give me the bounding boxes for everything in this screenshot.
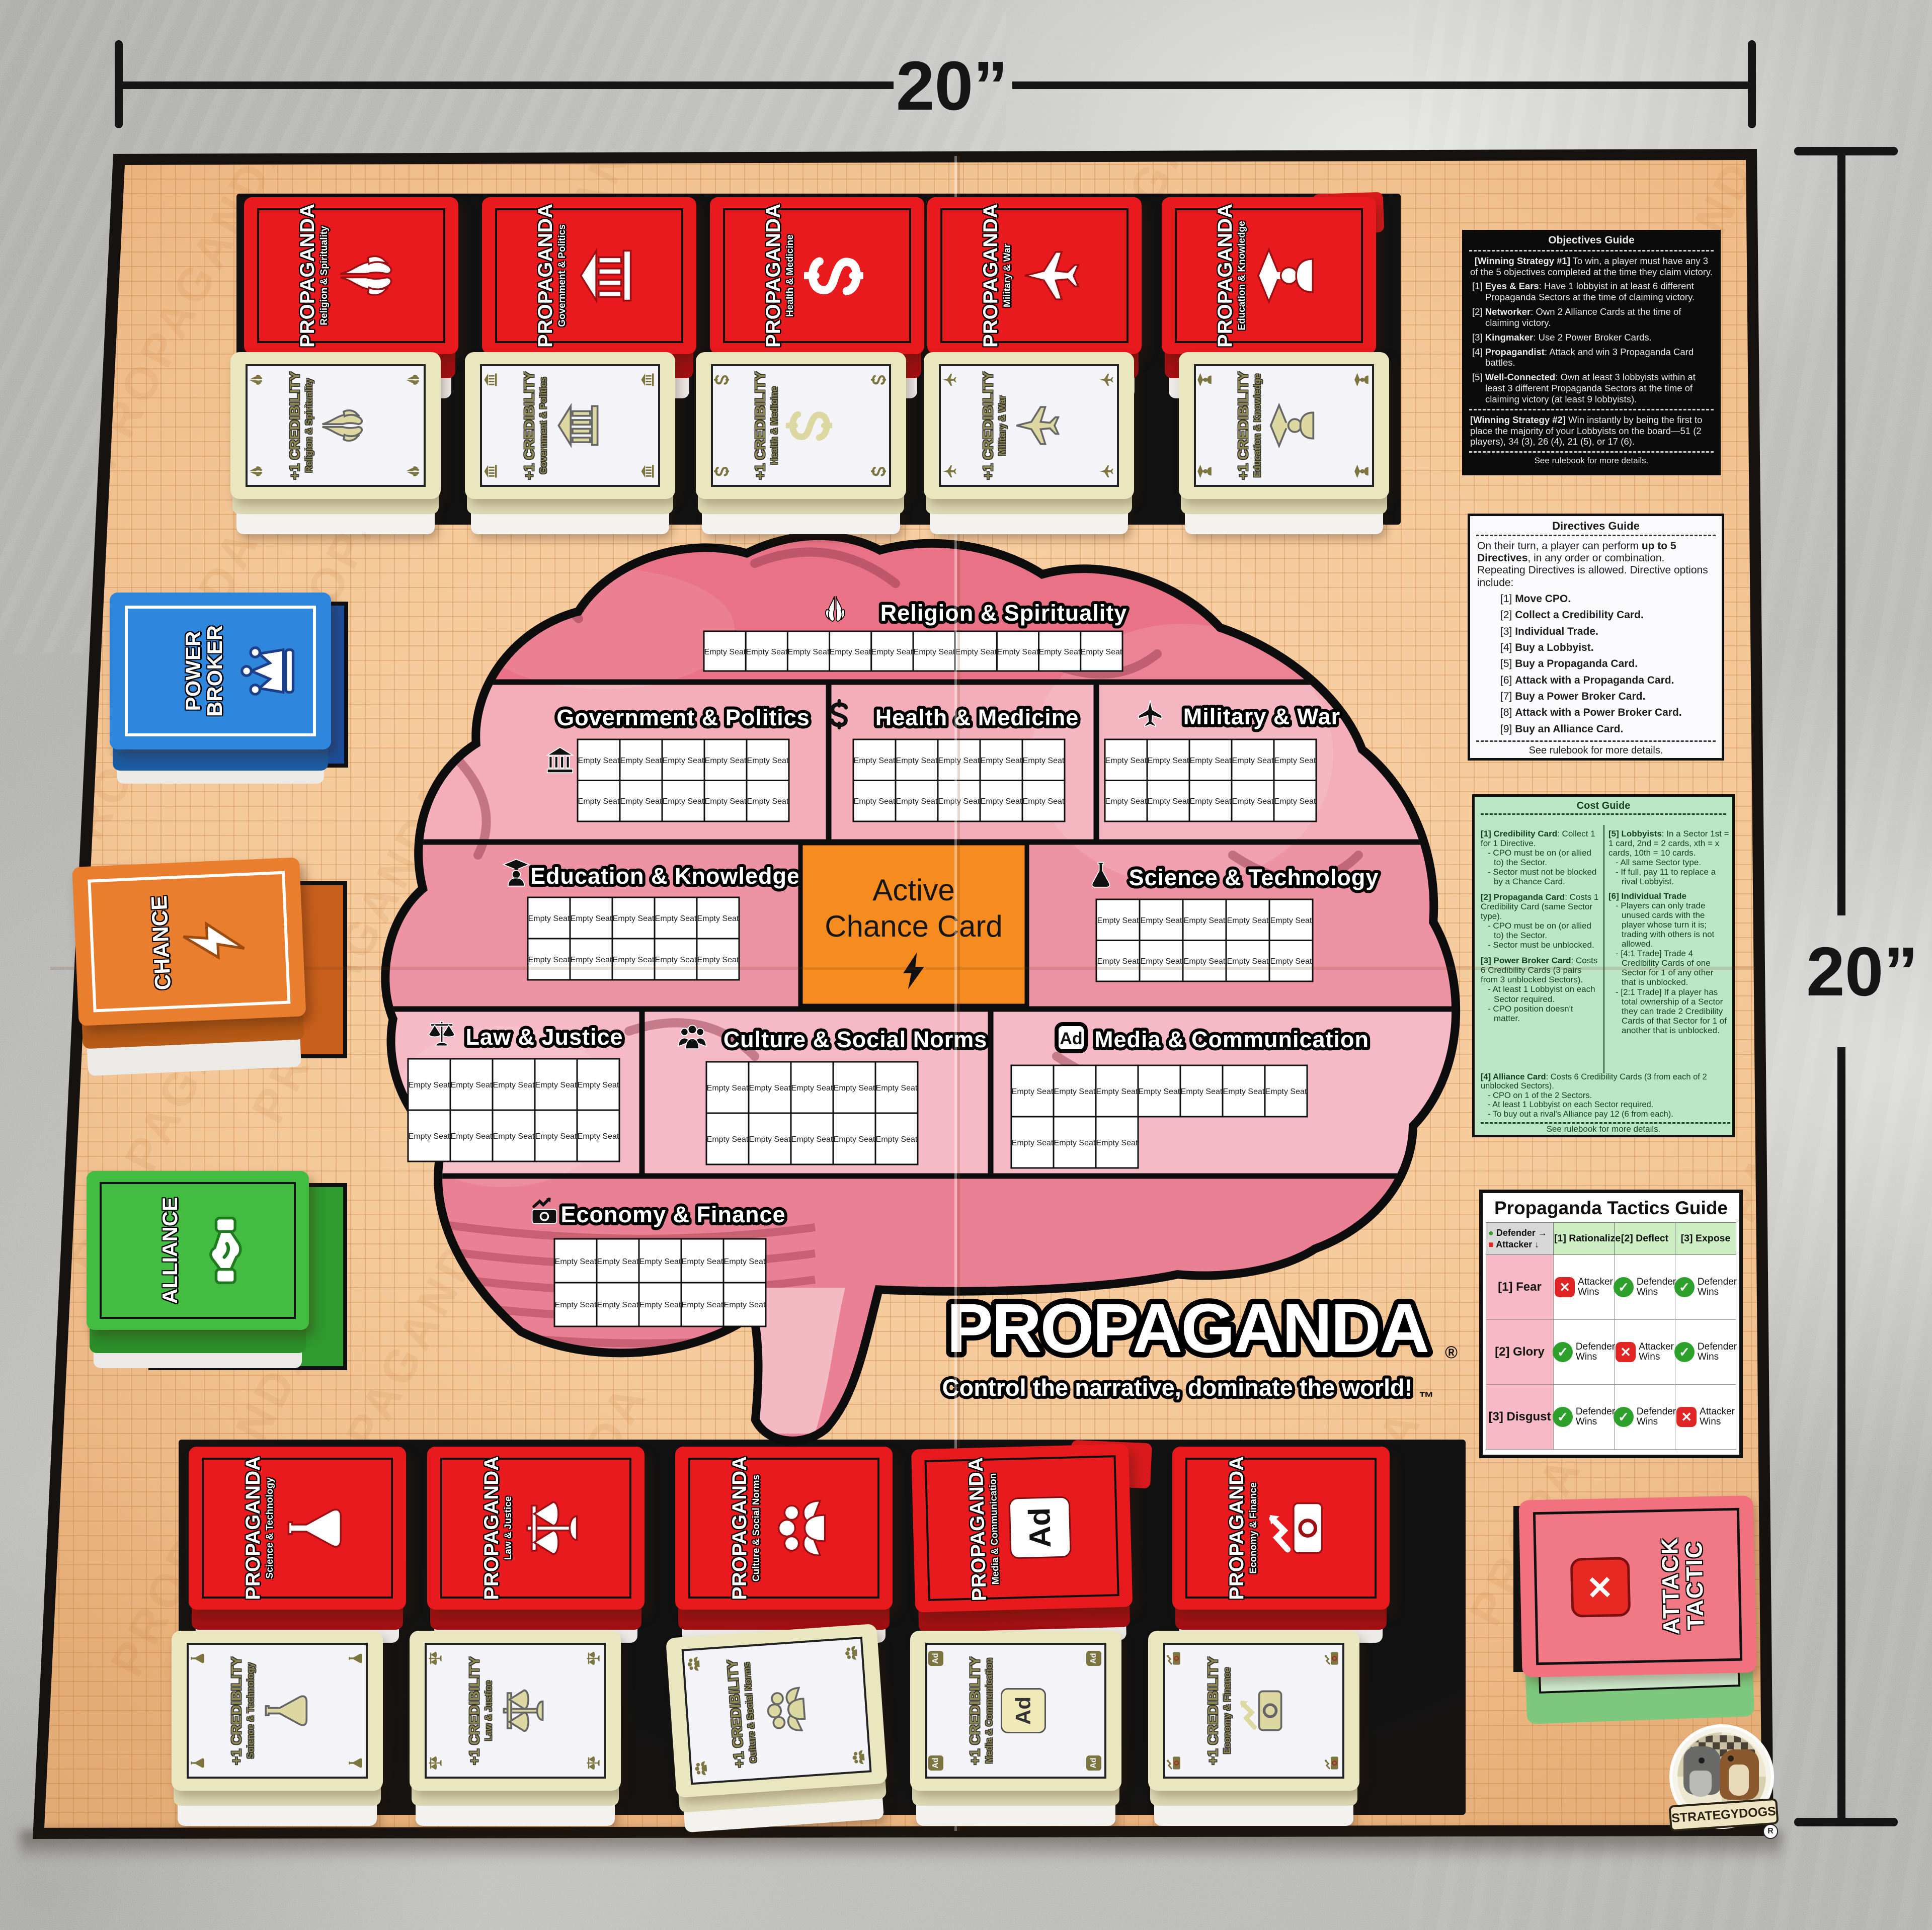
svg-text:Empty Seat: Empty Seat <box>1274 757 1316 765</box>
svg-text:Empty Seat: Empty Seat <box>1148 757 1189 765</box>
svg-text:Empty Seat: Empty Seat <box>571 914 612 923</box>
svg-text:Empty Seat: Empty Seat <box>1097 957 1139 966</box>
svg-text:Empty Seat: Empty Seat <box>451 1081 493 1089</box>
svg-text:Empty Seat: Empty Seat <box>578 757 620 765</box>
svg-text:Empty Seat: Empty Seat <box>705 797 747 806</box>
svg-text:Empty Seat: Empty Seat <box>1190 797 1232 806</box>
svg-text:Empty Seat: Empty Seat <box>747 757 789 765</box>
svg-text:Empty Seat: Empty Seat <box>1012 1087 1054 1096</box>
svg-text:Empty Seat: Empty Seat <box>896 757 938 765</box>
svg-text:Empty Seat: Empty Seat <box>571 956 612 964</box>
svg-text:Empty Seat: Empty Seat <box>613 956 655 964</box>
svg-text:Empty Seat: Empty Seat <box>697 914 739 923</box>
svg-text:Empty Seat: Empty Seat <box>1039 648 1081 656</box>
svg-text:Empty Seat: Empty Seat <box>854 797 896 806</box>
svg-text:Empty Seat: Empty Seat <box>451 1132 493 1141</box>
svg-text:Empty Seat: Empty Seat <box>1184 916 1226 925</box>
svg-text:Empty Seat: Empty Seat <box>834 1135 875 1144</box>
svg-text:Chance Card: Chance Card <box>825 909 1003 943</box>
svg-text:Empty Seat: Empty Seat <box>1232 757 1274 765</box>
svg-text:Empty Seat: Empty Seat <box>697 956 739 964</box>
svg-text:Empty Seat: Empty Seat <box>834 1084 875 1093</box>
svg-text:Empty Seat: Empty Seat <box>1148 797 1189 806</box>
svg-text:Empty Seat: Empty Seat <box>1227 916 1269 925</box>
svg-text:Control the narrative, dominat: Control the narrative, dominate the worl… <box>942 1374 1413 1401</box>
svg-text:Empty Seat: Empty Seat <box>876 1084 918 1093</box>
svg-text:Empty Seat: Empty Seat <box>749 1084 791 1093</box>
svg-text:Active: Active <box>872 873 954 907</box>
svg-text:Empty Seat: Empty Seat <box>981 797 1022 806</box>
svg-text:Empty Seat: Empty Seat <box>639 1301 681 1309</box>
svg-text:Empty Seat: Empty Seat <box>997 648 1039 656</box>
svg-text:Empty Seat: Empty Seat <box>705 757 747 765</box>
svg-text:Empty Seat: Empty Seat <box>724 1257 766 1266</box>
svg-text:Empty Seat: Empty Seat <box>1223 1087 1265 1096</box>
svg-text:Empty Seat: Empty Seat <box>682 1257 723 1266</box>
svg-text:Empty Seat: Empty Seat <box>1105 797 1147 806</box>
svg-text:Science & Technology: Science & Technology <box>1129 865 1379 890</box>
svg-text:Empty Seat: Empty Seat <box>528 914 570 923</box>
svg-text:Empty Seat: Empty Seat <box>620 797 662 806</box>
svg-text:Empty Seat: Empty Seat <box>1097 916 1139 925</box>
svg-text:Empty Seat: Empty Seat <box>747 797 789 806</box>
svg-text:Empty Seat: Empty Seat <box>1190 757 1232 765</box>
svg-text:Empty Seat: Empty Seat <box>1081 648 1122 656</box>
svg-text:Empty Seat: Empty Seat <box>655 956 697 964</box>
svg-text:Empty Seat: Empty Seat <box>981 757 1022 765</box>
svg-text:Empty Seat: Empty Seat <box>493 1081 535 1089</box>
svg-text:Empty Seat: Empty Seat <box>639 1257 681 1266</box>
svg-text:Empty Seat: Empty Seat <box>578 1132 619 1141</box>
svg-text:Empty Seat: Empty Seat <box>1096 1139 1138 1147</box>
svg-text:Empty Seat: Empty Seat <box>409 1081 450 1089</box>
svg-text:Empty Seat: Empty Seat <box>528 956 570 964</box>
svg-text:Empty Seat: Empty Seat <box>791 1084 833 1093</box>
svg-text:Empty Seat: Empty Seat <box>535 1081 577 1089</box>
svg-text:Empty Seat: Empty Seat <box>555 1257 597 1266</box>
svg-text:Health & Medicine: Health & Medicine <box>875 705 1079 730</box>
svg-text:Empty Seat: Empty Seat <box>914 648 955 656</box>
svg-text:Empty Seat: Empty Seat <box>1270 957 1312 966</box>
svg-text:Empty Seat: Empty Seat <box>597 1301 639 1309</box>
svg-text:Empty Seat: Empty Seat <box>707 1084 749 1093</box>
svg-text:Empty Seat: Empty Seat <box>620 757 662 765</box>
svg-text:Empty Seat: Empty Seat <box>663 797 704 806</box>
svg-text:Empty Seat: Empty Seat <box>749 1135 791 1144</box>
svg-text:Empty Seat: Empty Seat <box>1184 957 1226 966</box>
svg-text:Economy & Finance: Economy & Finance <box>560 1202 785 1227</box>
svg-text:Empty Seat: Empty Seat <box>597 1257 639 1266</box>
svg-text:Empty Seat: Empty Seat <box>1054 1139 1096 1147</box>
svg-text:Empty Seat: Empty Seat <box>613 914 655 923</box>
svg-text:Law & Justice: Law & Justice <box>465 1024 623 1050</box>
svg-text:Ad: Ad <box>1060 1029 1082 1048</box>
svg-text:™: ™ <box>1419 1389 1434 1406</box>
svg-text:Empty Seat: Empty Seat <box>655 914 697 923</box>
svg-text:Empty Seat: Empty Seat <box>1270 916 1312 925</box>
svg-text:Empty Seat: Empty Seat <box>788 648 830 656</box>
svg-text:Empty Seat: Empty Seat <box>724 1301 766 1309</box>
svg-text:Empty Seat: Empty Seat <box>791 1135 833 1144</box>
svg-text:Empty Seat: Empty Seat <box>1023 797 1065 806</box>
svg-text:Empty Seat: Empty Seat <box>1141 957 1182 966</box>
svg-text:Empty Seat: Empty Seat <box>871 648 913 656</box>
svg-text:Empty Seat: Empty Seat <box>409 1132 450 1141</box>
svg-text:Empty Seat: Empty Seat <box>704 648 746 656</box>
svg-text:Media & Communication: Media & Communication <box>1094 1027 1369 1052</box>
svg-text:Empty Seat: Empty Seat <box>1012 1139 1054 1147</box>
svg-text:Empty Seat: Empty Seat <box>1139 1087 1180 1096</box>
svg-text:Education & Knowledge: Education & Knowledge <box>530 863 800 889</box>
svg-text:Empty Seat: Empty Seat <box>1096 1087 1138 1096</box>
svg-text:Empty Seat: Empty Seat <box>1181 1087 1223 1096</box>
svg-text:Empty Seat: Empty Seat <box>493 1132 535 1141</box>
svg-text:PROPAGANDA: PROPAGANDA <box>947 1290 1428 1367</box>
svg-text:Empty Seat: Empty Seat <box>1265 1087 1307 1096</box>
svg-text:Empty Seat: Empty Seat <box>1274 797 1316 806</box>
svg-text:Empty Seat: Empty Seat <box>578 797 620 806</box>
svg-text:®: ® <box>1445 1343 1458 1362</box>
svg-text:Empty Seat: Empty Seat <box>854 757 896 765</box>
svg-text:Empty Seat: Empty Seat <box>682 1301 723 1309</box>
svg-text:Empty Seat: Empty Seat <box>555 1301 597 1309</box>
svg-text:Culture & Social Norms: Culture & Social Norms <box>723 1027 988 1052</box>
svg-text:Empty Seat: Empty Seat <box>578 1081 619 1089</box>
svg-text:Military & War: Military & War <box>1183 704 1340 729</box>
svg-text:Empty Seat: Empty Seat <box>896 797 938 806</box>
svg-text:Empty Seat: Empty Seat <box>1054 1087 1096 1096</box>
svg-text:Empty Seat: Empty Seat <box>955 648 997 656</box>
svg-text:Empty Seat: Empty Seat <box>1141 916 1182 925</box>
svg-text:Empty Seat: Empty Seat <box>876 1135 918 1144</box>
svg-text:Empty Seat: Empty Seat <box>1232 797 1274 806</box>
svg-text:Empty Seat: Empty Seat <box>1105 757 1147 765</box>
svg-text:Government & Politics: Government & Politics <box>556 705 810 730</box>
svg-text:Empty Seat: Empty Seat <box>535 1132 577 1141</box>
svg-text:Religion & Spirituality: Religion & Spirituality <box>880 600 1128 626</box>
svg-text:Empty Seat: Empty Seat <box>746 648 788 656</box>
svg-text:Empty Seat: Empty Seat <box>1227 957 1269 966</box>
svg-text:Empty Seat: Empty Seat <box>830 648 871 656</box>
svg-text:Empty Seat: Empty Seat <box>1023 757 1065 765</box>
svg-text:Empty Seat: Empty Seat <box>707 1135 749 1144</box>
svg-text:Empty Seat: Empty Seat <box>663 757 704 765</box>
